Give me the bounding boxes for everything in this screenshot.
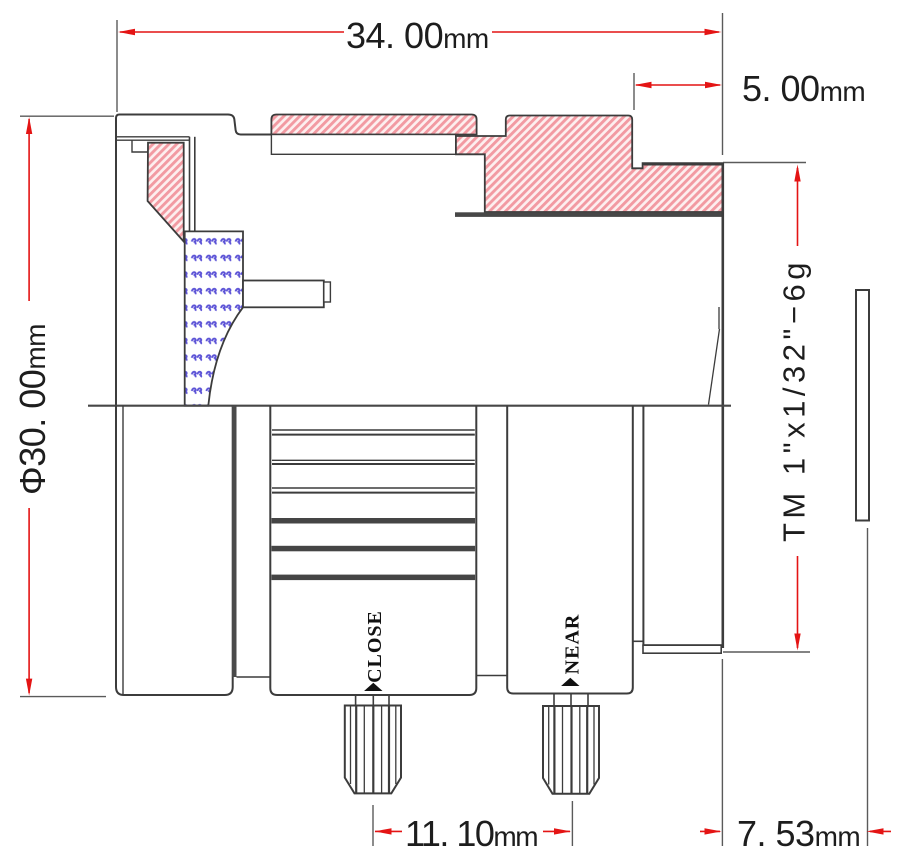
svg-text:NEAR: NEAR bbox=[562, 614, 584, 675]
svg-text:TM 1"x1/32"−6g: TM 1"x1/32"−6g bbox=[777, 258, 812, 542]
svg-text:CLOSE: CLOSE bbox=[364, 610, 386, 683]
